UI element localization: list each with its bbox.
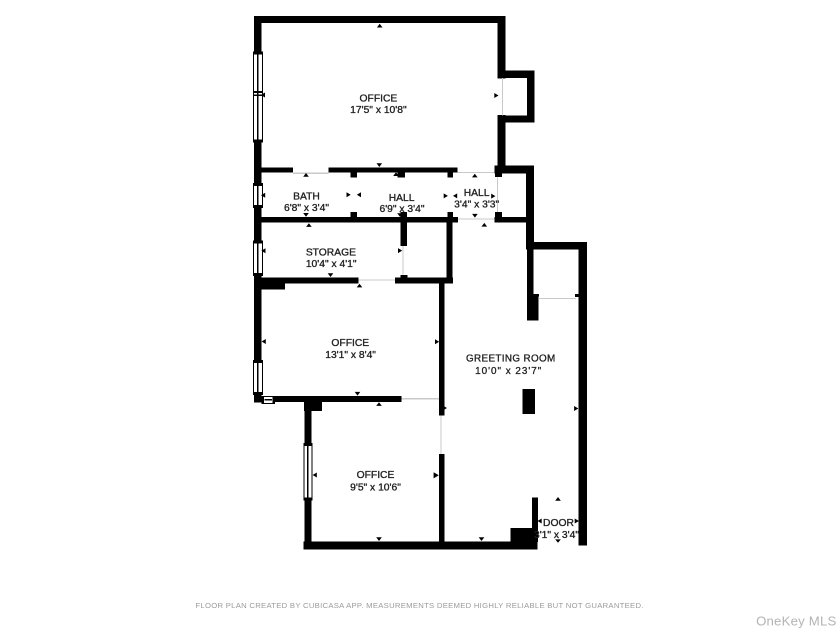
svg-text:9'5" x 10'6": 9'5" x 10'6" <box>350 483 401 494</box>
svg-text:10'4" x 4'1": 10'4" x 4'1" <box>306 259 357 270</box>
svg-text:OFFICE: OFFICE <box>360 94 398 105</box>
svg-text:FLOOR PLAN CREATED BY CUBICASA: FLOOR PLAN CREATED BY CUBICASA APP. MEAS… <box>195 601 643 610</box>
svg-text:OFFICE: OFFICE <box>357 470 395 481</box>
svg-text:3'1" x 3'4": 3'1" x 3'4" <box>534 530 579 541</box>
svg-text:DOOR: DOOR <box>543 518 574 529</box>
svg-text:OneKey MLS: OneKey MLS <box>756 614 836 629</box>
svg-text:STORAGE: STORAGE <box>306 248 356 259</box>
svg-text:HALL: HALL <box>464 188 490 199</box>
svg-text:13'1" x 8'4": 13'1" x 8'4" <box>325 350 376 361</box>
svg-text:10'0" x 23'7": 10'0" x 23'7" <box>475 366 542 377</box>
svg-text:OFFICE: OFFICE <box>331 338 369 349</box>
svg-text:6'8" x 3'4": 6'8" x 3'4" <box>284 203 329 214</box>
svg-text:3'4" x 3'3": 3'4" x 3'3" <box>454 199 499 210</box>
svg-text:6'9" x 3'4": 6'9" x 3'4" <box>379 204 424 215</box>
svg-text:BATH: BATH <box>293 192 320 203</box>
svg-text:17'5" x 10'8": 17'5" x 10'8" <box>350 105 407 116</box>
svg-text:GREETING ROOM: GREETING ROOM <box>466 354 556 365</box>
svg-text:HALL: HALL <box>389 193 415 204</box>
